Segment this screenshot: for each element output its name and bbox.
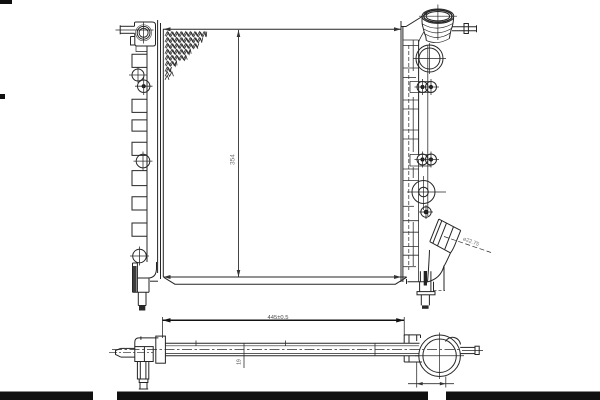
svg-text:445±0.5: 445±0.5 [268,315,289,321]
svg-text:19: 19 [237,359,243,365]
svg-text:354: 354 [230,154,237,165]
